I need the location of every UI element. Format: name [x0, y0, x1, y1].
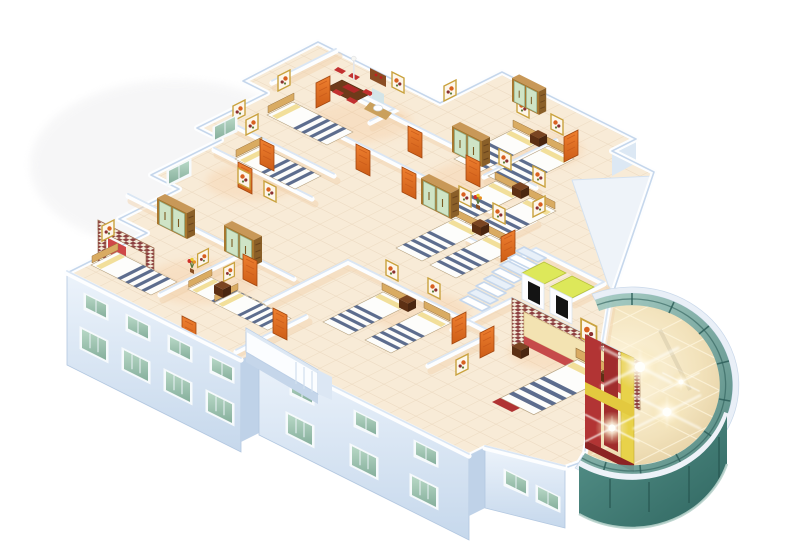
floorplan-stage: [0, 0, 800, 550]
facade-jog: [469, 448, 485, 516]
floorplan-render: [0, 0, 800, 550]
washbasin: [373, 105, 382, 111]
floor-lamp: [353, 60, 355, 80]
